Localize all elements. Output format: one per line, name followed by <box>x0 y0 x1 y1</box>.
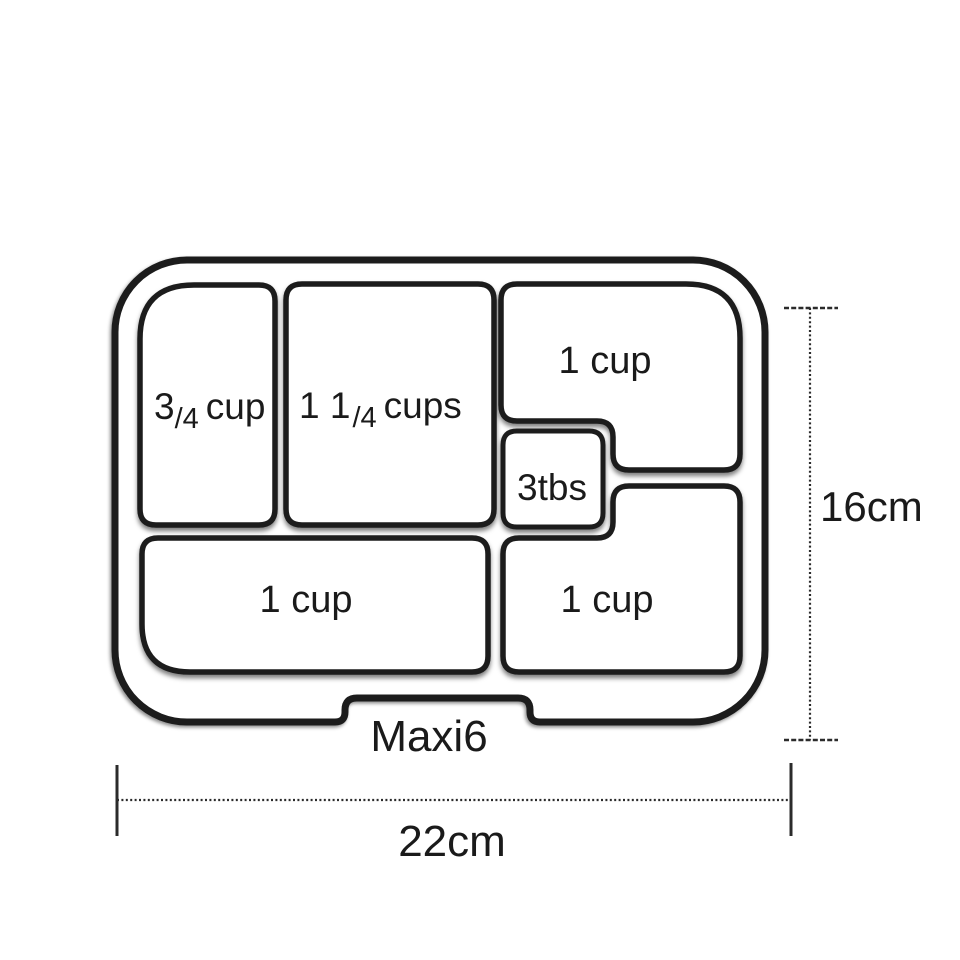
dimension-width: 22cm <box>117 763 791 866</box>
capacity-fraction: /4 <box>175 403 199 435</box>
tray-diagram: 3/4cup 1 1/4cups 1 cup 3tbs 1 cup 1 cup … <box>0 0 960 960</box>
capacity-label-bottom-left: 1 cup <box>260 579 353 621</box>
dimension-height: 16cm <box>784 308 923 740</box>
capacity-whole: 1 1 <box>299 385 350 426</box>
capacity-whole: 3 <box>154 386 175 427</box>
tray-name-label: Maxi6 <box>370 712 487 761</box>
capacity-label-bottom-right: 1 cup <box>561 579 654 621</box>
capacity-fraction: /4 <box>352 402 376 434</box>
capacity-unit: cups <box>384 385 462 426</box>
capacity-label-top-right: 1 cup <box>559 340 652 382</box>
capacity-label-middle-small: 3tbs <box>517 467 587 508</box>
diagram-canvas: 3/4cup 1 1/4cups 1 cup 3tbs 1 cup 1 cup … <box>0 0 960 960</box>
dimension-height-label: 16cm <box>820 483 923 530</box>
dimension-width-label: 22cm <box>398 817 506 866</box>
capacity-unit: cup <box>206 386 266 427</box>
